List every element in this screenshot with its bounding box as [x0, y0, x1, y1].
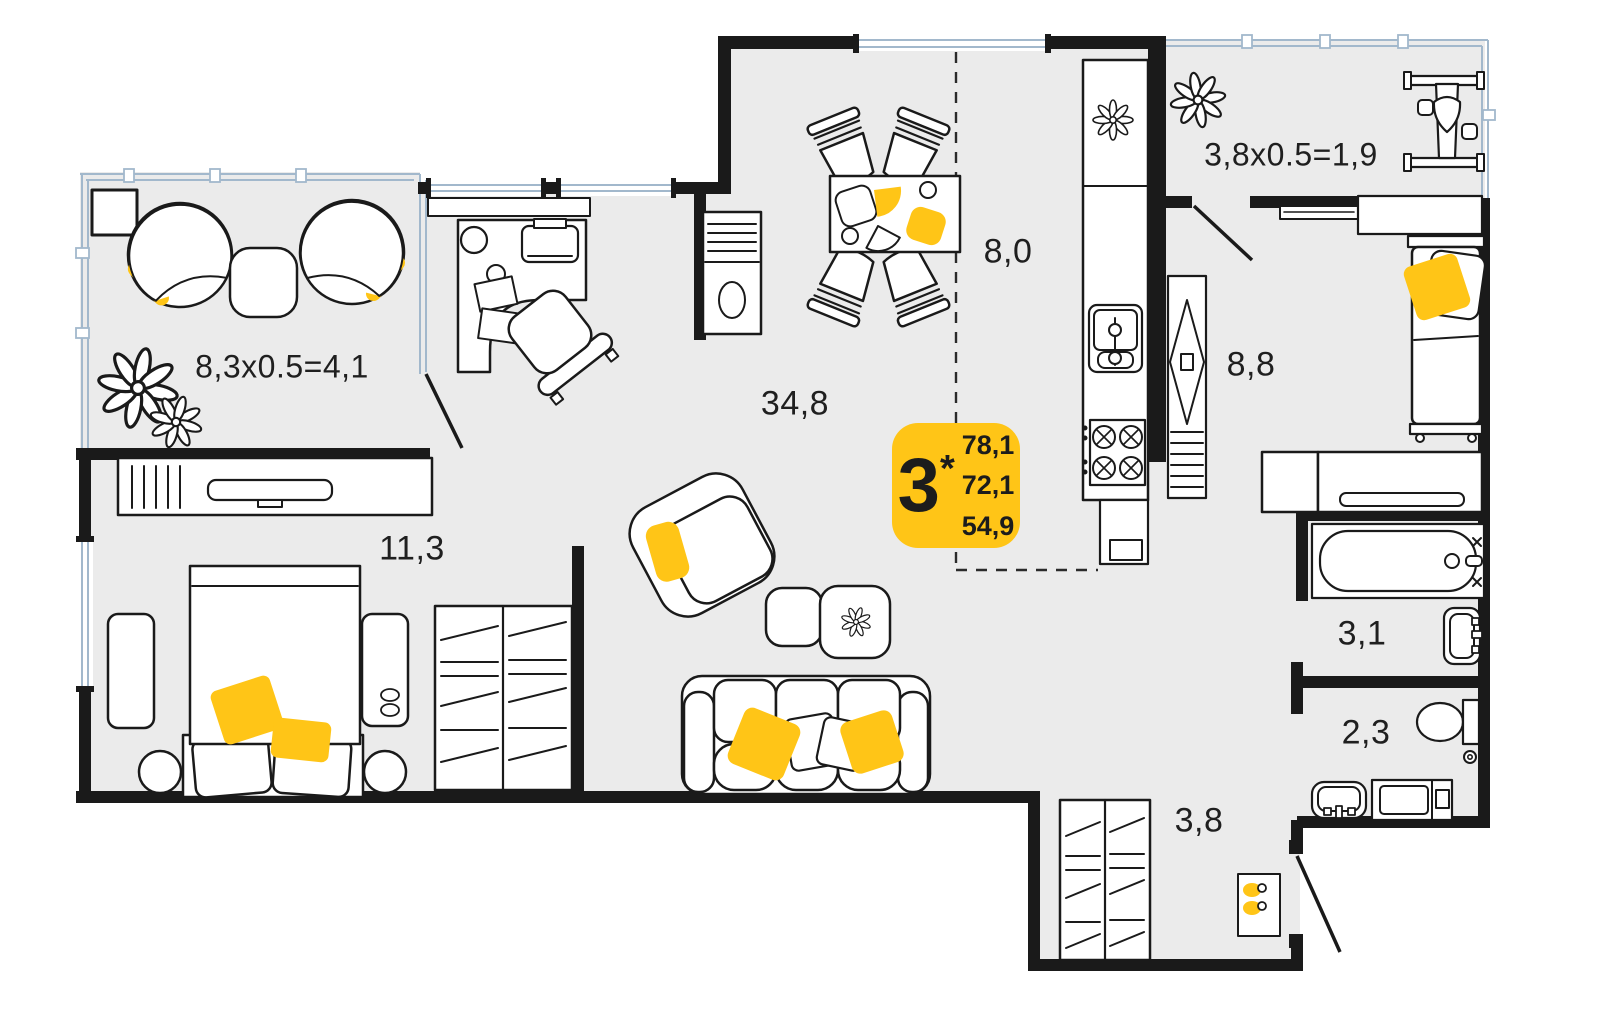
- dresser: [1262, 452, 1482, 512]
- total-area: 78,1: [962, 425, 1015, 466]
- wardrobe-bedroom: [435, 606, 572, 790]
- coffee-tables: [766, 586, 890, 658]
- faucet: [1472, 631, 1482, 638]
- wall-shelf: [428, 198, 590, 216]
- kitchen-sink: [1089, 305, 1142, 372]
- entrance-door-leaf: [1297, 856, 1340, 952]
- glass: [842, 228, 858, 244]
- room-label-kitchen: 8,0: [984, 233, 1033, 272]
- pedal: [1418, 100, 1433, 115]
- doormat: [1238, 874, 1280, 936]
- tv-stand: [258, 500, 282, 507]
- tv-console: [118, 458, 432, 515]
- room-label-living-room: 34,8: [761, 385, 829, 424]
- floor-plan-page: 8,3x0.5=4,1 11,3 34,8 8,0 3,8x0.5=1,9 8,…: [0, 0, 1600, 1022]
- pillow: [270, 717, 332, 763]
- cabinet: [1110, 540, 1142, 560]
- pouf: [364, 751, 406, 793]
- headboard: [1408, 236, 1484, 247]
- pouf: [139, 751, 181, 793]
- stove: [1083, 420, 1146, 485]
- cistern: [1463, 700, 1479, 744]
- basin: [719, 282, 745, 318]
- slippers: [381, 704, 399, 716]
- bar-cabinet: [703, 212, 761, 334]
- shelf: [1358, 196, 1482, 234]
- toilet-sink: [1312, 782, 1366, 818]
- room-label-bathroom: 3,1: [1338, 615, 1387, 654]
- side-table: [230, 248, 297, 317]
- room-label-bedroom-left: 11,3: [379, 530, 445, 569]
- living-area: 54,9: [962, 506, 1015, 547]
- sofa: [682, 676, 930, 794]
- washing-machine: [1372, 780, 1452, 820]
- printer: [534, 219, 566, 228]
- bathroom-sink: [1444, 608, 1482, 664]
- control-panel: [1436, 790, 1449, 808]
- faucet: [1466, 556, 1482, 566]
- shelf-column: [1168, 276, 1206, 498]
- asterisk: *: [940, 450, 955, 488]
- bathtub: [1312, 524, 1484, 598]
- room-label-hallway: 3,8: [1175, 802, 1224, 841]
- balcony-corner-box: [92, 190, 137, 235]
- kitchen-counter: [1083, 60, 1149, 564]
- drum-door: [1380, 786, 1428, 814]
- apartment-info-badge: 3* 78,1 72,1 54,9: [892, 423, 1020, 548]
- coffee-table: [766, 588, 822, 646]
- area-values: 78,1 72,1 54,9: [962, 425, 1015, 547]
- room-label-toilet: 2,3: [1342, 714, 1391, 753]
- room-label-bedroom-right: 8,8: [1227, 346, 1276, 385]
- room-label-balcony-right: 3,8x0.5=1,9: [1204, 137, 1378, 174]
- nightstand: [108, 614, 154, 728]
- footboard: [1410, 424, 1482, 434]
- rooms-count: 3*: [898, 448, 955, 524]
- drain: [1445, 554, 1459, 568]
- tv: [208, 480, 332, 500]
- room-label-balcony-left: 8,3x0.5=4,1: [195, 349, 369, 386]
- faucet: [1336, 806, 1342, 818]
- cup: [461, 227, 487, 253]
- slippers: [381, 689, 399, 701]
- area-value: 72,1: [962, 465, 1015, 506]
- glass: [920, 182, 936, 198]
- plant: [1093, 100, 1133, 140]
- hallway-wardrobe: [1060, 800, 1150, 960]
- pedal: [1462, 124, 1477, 139]
